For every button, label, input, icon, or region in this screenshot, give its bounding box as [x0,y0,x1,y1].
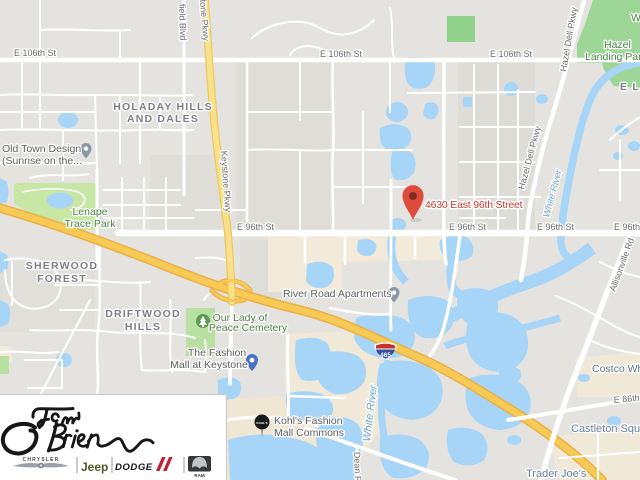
svg-text:AND DALES: AND DALES [127,113,199,125]
svg-text:Dean Rd: Dean Rd [352,452,363,480]
svg-text:465: 465 [380,352,391,359]
svg-text:FOREST: FOREST [37,273,87,285]
svg-text:KOHL'S: KOHL'S [256,421,267,425]
svg-text:Trader Joe's: Trader Joe's [526,468,587,480]
svg-text:Hazel: Hazel [604,39,631,51]
svg-text:Mall at Keystone: Mall at Keystone [170,359,248,371]
svg-text:DRIFTWOOD: DRIFTWOOD [105,308,181,320]
svg-text:E 106th St: E 106th St [490,49,533,59]
svg-text:CHRYSLER: CHRYSLER [23,457,60,463]
svg-text:Costco Wholesale: Costco Wholesale [592,363,640,375]
svg-text:W: W [631,12,640,24]
svg-text:Jeep: Jeep [81,460,108,474]
svg-text:E 106th St: E 106th St [320,49,363,59]
svg-text:E 96th St: E 96th St [537,222,575,232]
svg-text:E 96th St: E 96th St [614,222,640,232]
svg-text:E 96th St: E 96th St [237,222,275,232]
svg-text:E 86th St: E 86th St [613,392,640,405]
svg-text:Trace Park: Trace Park [65,218,117,230]
svg-text:River Road Apartments: River Road Apartments [283,288,392,300]
svg-text:E 106th St: E 106th St [14,48,57,58]
svg-text:Lenape: Lenape [72,206,107,218]
svg-text:E 96th St: E 96th St [449,222,487,232]
svg-text:Landing Park: Landing Park [585,51,640,63]
svg-text:RAM: RAM [194,473,205,478]
svg-text:Kohl's Fashion: Kohl's Fashion [274,415,343,427]
svg-text:SHERWOOD: SHERWOOD [26,260,98,272]
svg-text:E L: E L [620,81,640,93]
svg-text:field Blvd: field Blvd [177,4,188,41]
svg-text:(Sunrise on the...: (Sunrise on the... [2,155,82,167]
svg-text:DODGE: DODGE [115,462,153,473]
svg-text:Castleton Square: Castleton Square [571,423,640,435]
svg-text:The Fashion: The Fashion [188,347,247,359]
svg-text:Old Town Design: Old Town Design [2,143,81,155]
svg-text:Peace Cemetery: Peace Cemetery [209,322,288,334]
svg-text:4630 East 96th Street: 4630 East 96th Street [425,199,523,211]
svg-text:Mall Commons: Mall Commons [274,427,344,439]
svg-text:HOLADAY HILLS: HOLADAY HILLS [113,101,213,113]
svg-text:HILLS: HILLS [125,321,161,333]
